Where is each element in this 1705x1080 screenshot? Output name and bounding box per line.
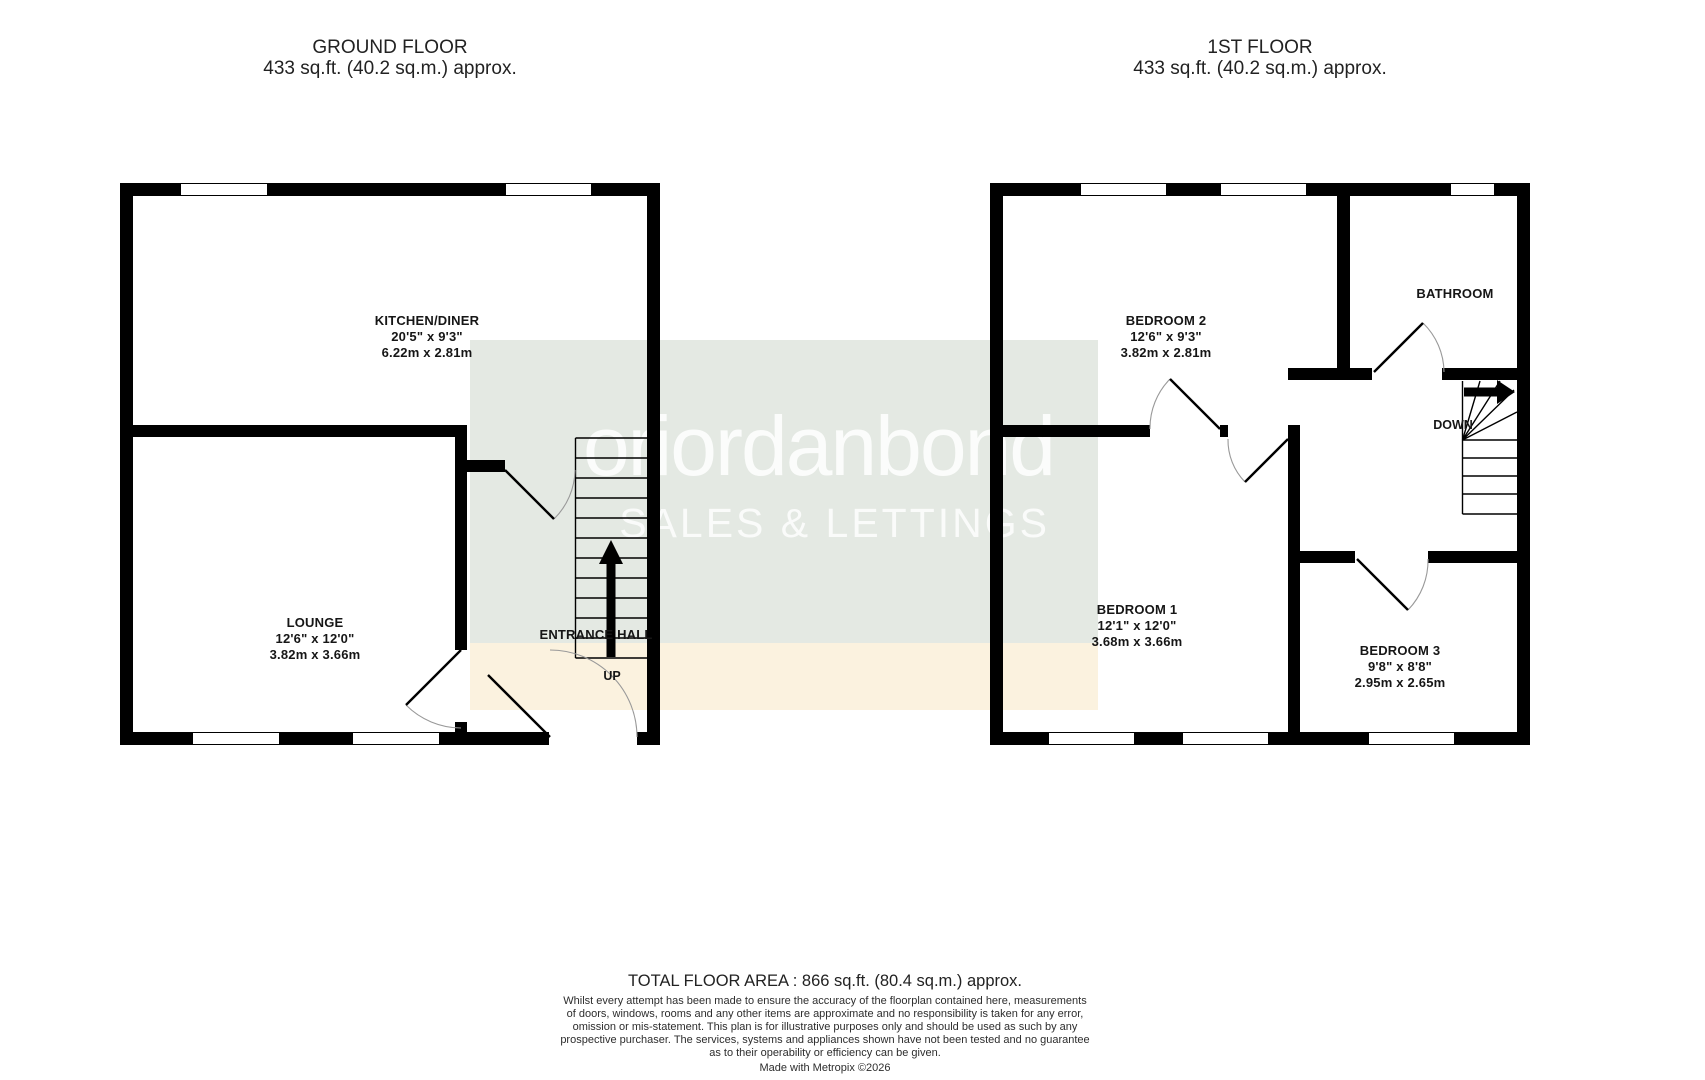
bedroom2-name: BEDROOM 2	[1026, 313, 1306, 329]
bedroom1-name: BEDROOM 1	[997, 602, 1277, 618]
ff-bedroom1-door-arc	[1228, 439, 1245, 482]
bedroom1-label: BEDROOM 1 12'1" x 12'0" 3.68m x 3.66m	[997, 602, 1277, 650]
disclaimer-line-3: omission or mis-statement. This plan is …	[0, 1021, 1650, 1033]
gf-kitchen-door-leaf	[505, 470, 554, 519]
kitchen-diner-name: KITCHEN/DINER	[287, 313, 567, 329]
entrance-hall-name: ENTRANCE HALL	[456, 627, 736, 643]
bedroom3-label: BEDROOM 3 9'8" x 8'8" 2.95m x 2.65m	[1260, 643, 1540, 691]
ff-staircase	[1463, 381, 1518, 514]
ff-bedroom3-door-leaf	[1357, 559, 1408, 610]
ff-bathroom-door-leaf	[1374, 323, 1423, 372]
disclaimer-line-1: Whilst every attempt has been made to en…	[0, 995, 1650, 1007]
kitchen-diner-metric: 6.22m x 2.81m	[287, 345, 567, 361]
gf-front-door-arc	[550, 650, 637, 737]
metropix-credit: Made with Metropix ©2026	[0, 1062, 1650, 1074]
disclaimer-line-5: as to their operability or efficiency ca…	[0, 1047, 1650, 1059]
up-label: UP	[472, 669, 752, 683]
ff-bathroom-door-arc	[1423, 323, 1444, 372]
ff-bedroom2-door-arc	[1150, 379, 1170, 429]
ff-bedroom1-door-leaf	[1245, 439, 1288, 482]
total-floor-area: TOTAL FLOOR AREA : 866 sq.ft. (80.4 sq.m…	[0, 972, 1650, 991]
bathroom-name: BATHROOM	[1315, 286, 1595, 302]
bedroom2-imperial: 12'6" x 9'3"	[1026, 329, 1306, 345]
floorplan-canvas: oriordanbond SALES & LETTINGS GROUND FLO…	[0, 0, 1705, 1080]
gf-kitchen-door-arc	[554, 470, 575, 519]
bedroom2-metric: 3.82m x 2.81m	[1026, 345, 1306, 361]
ff-bedroom2-door-leaf	[1170, 379, 1220, 429]
bedroom1-imperial: 12'1" x 12'0"	[997, 618, 1277, 634]
bathroom-label: BATHROOM	[1315, 286, 1595, 302]
detail-overlay	[0, 0, 1705, 1080]
disclaimer-line-2: of doors, windows, rooms and any other i…	[0, 1008, 1650, 1020]
bedroom3-imperial: 9'8" x 8'8"	[1260, 659, 1540, 675]
lounge-imperial: 12'6" x 12'0"	[175, 631, 455, 647]
gf-lounge-door-arc	[406, 705, 461, 728]
bedroom2-label: BEDROOM 2 12'6" x 9'3" 3.82m x 2.81m	[1026, 313, 1306, 361]
kitchen-diner-label: KITCHEN/DINER 20'5" x 9'3" 6.22m x 2.81m	[287, 313, 567, 361]
gf-front-door-leaf	[488, 675, 550, 737]
entrance-hall-label: ENTRANCE HALL	[456, 627, 736, 643]
bedroom3-name: BEDROOM 3	[1260, 643, 1540, 659]
ff-bedroom3-door-arc	[1408, 559, 1428, 610]
bedroom3-metric: 2.95m x 2.65m	[1260, 675, 1540, 691]
lounge-label: LOUNGE 12'6" x 12'0" 3.82m x 3.66m	[175, 615, 455, 663]
kitchen-diner-imperial: 20'5" x 9'3"	[287, 329, 567, 345]
lounge-metric: 3.82m x 3.66m	[175, 647, 455, 663]
lounge-name: LOUNGE	[175, 615, 455, 631]
down-label: DOWN	[1313, 418, 1593, 432]
down-arrow-icon	[1464, 380, 1515, 404]
disclaimer-line-4: prospective purchaser. The services, sys…	[0, 1034, 1650, 1046]
bedroom1-metric: 3.68m x 3.66m	[997, 634, 1277, 650]
